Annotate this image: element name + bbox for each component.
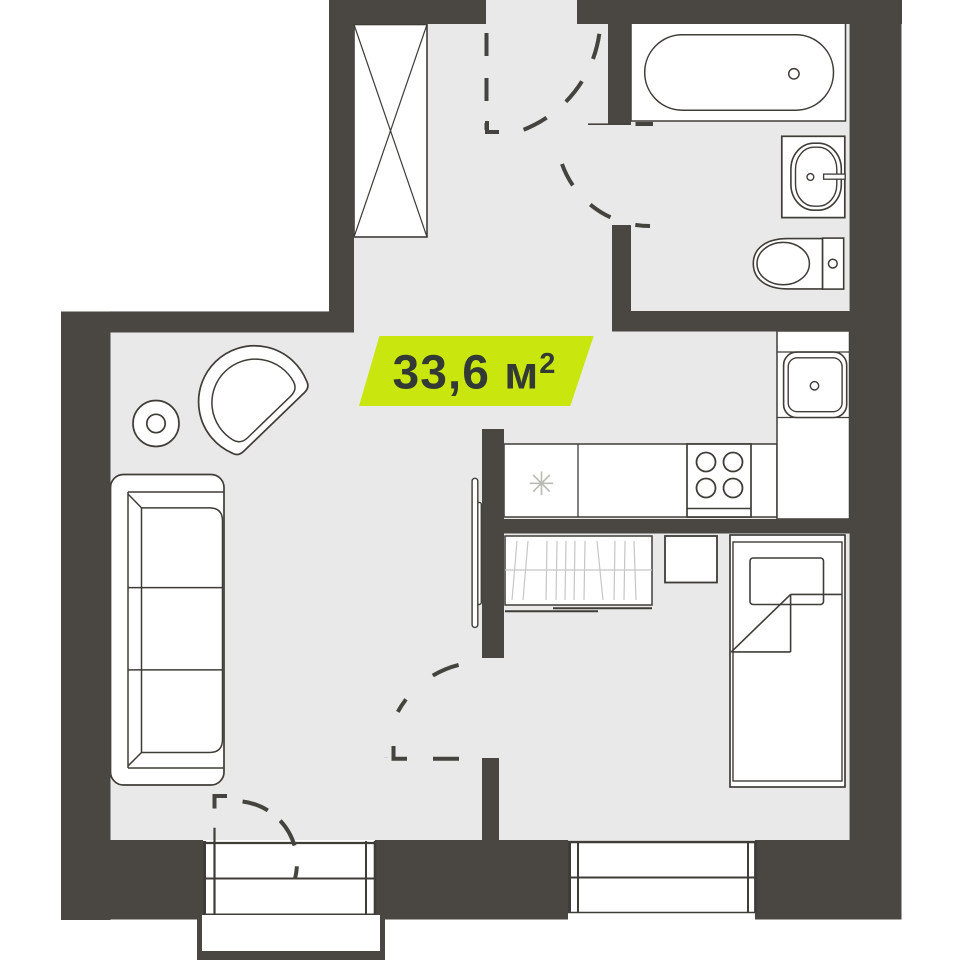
svg-text:33,6 м2: 33,6 м2: [393, 347, 557, 400]
